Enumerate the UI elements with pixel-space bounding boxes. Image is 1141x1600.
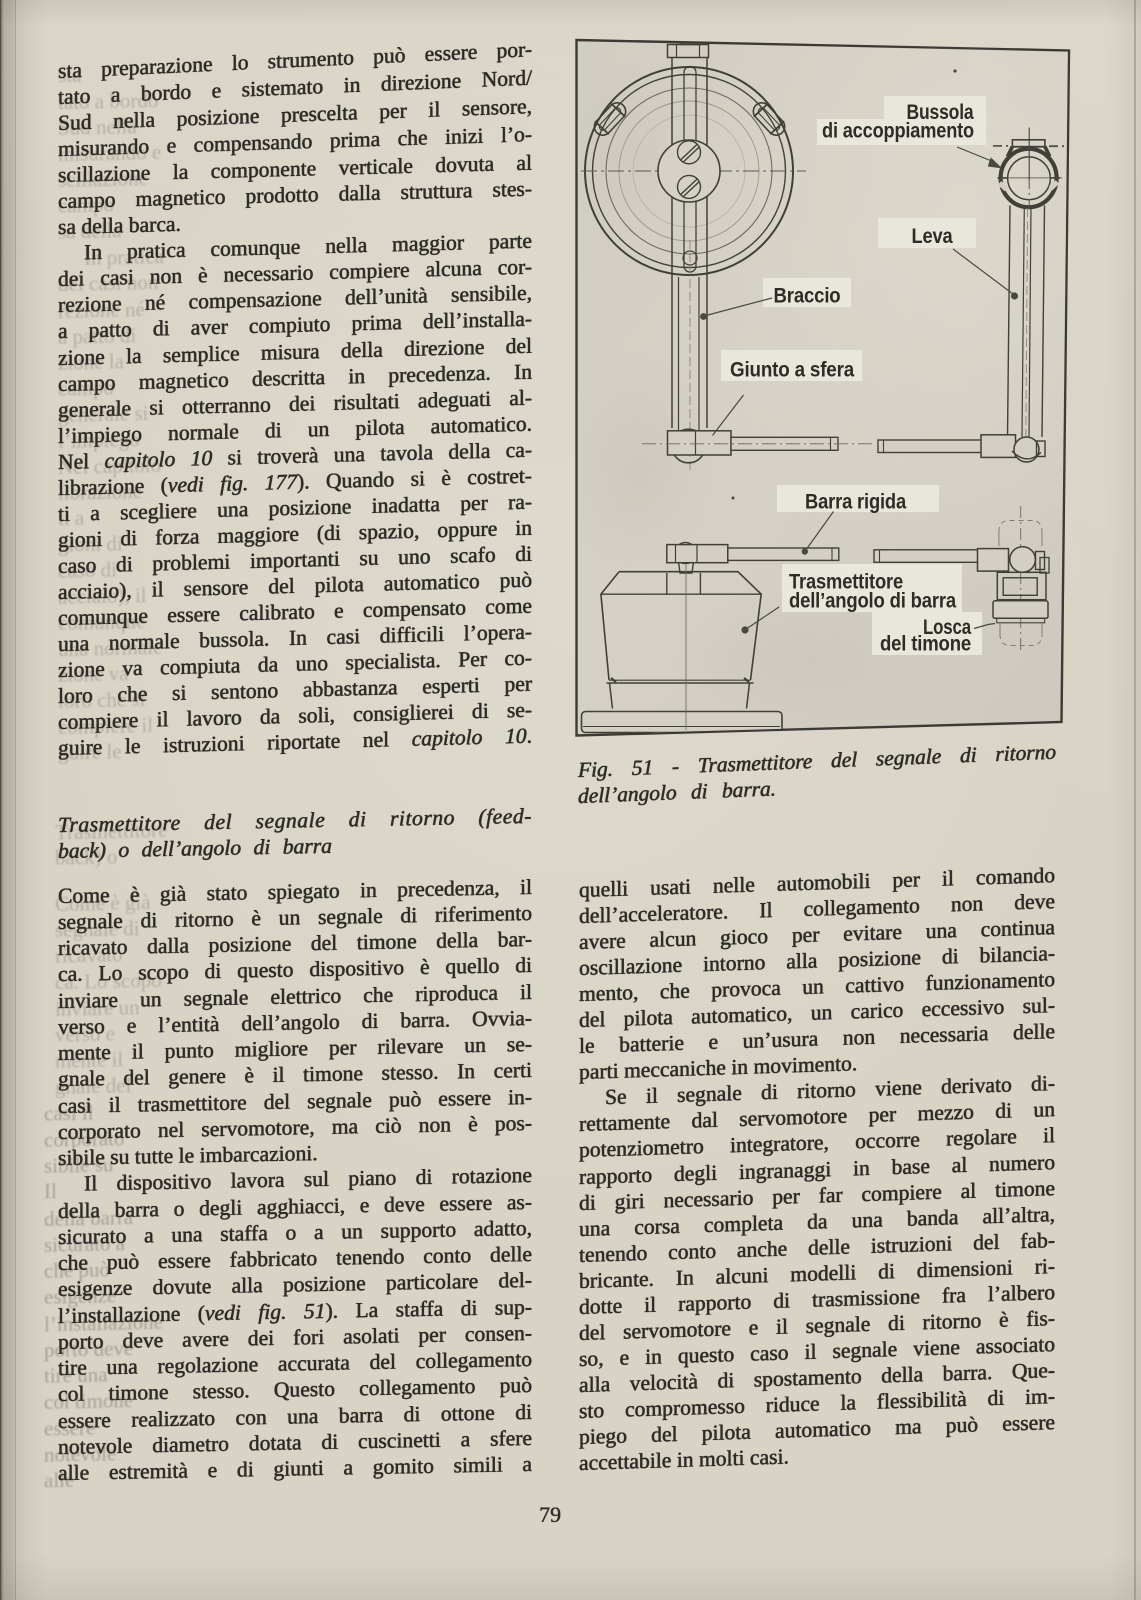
svg-text:Barra rigida: Barra rigida xyxy=(805,490,907,514)
svg-text:dell’angolo di barra: dell’angolo di barra xyxy=(789,589,957,613)
svg-text:di accoppiamento: di accoppiamento xyxy=(822,119,974,143)
svg-text:Giunto a sfera: Giunto a sfera xyxy=(730,358,855,382)
svg-text:Leva: Leva xyxy=(912,224,954,248)
svg-text:Braccio: Braccio xyxy=(774,284,841,308)
svg-text:del timone: del timone xyxy=(880,632,971,656)
